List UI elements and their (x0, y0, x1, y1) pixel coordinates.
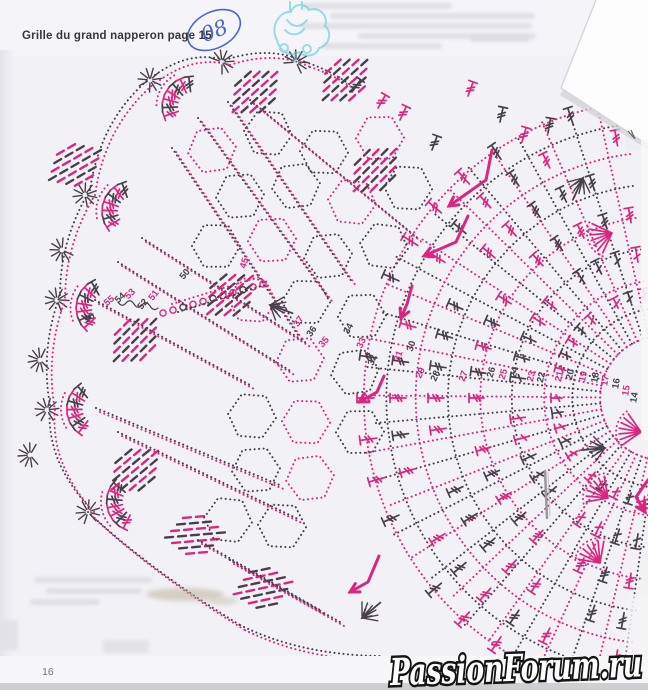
scanned-page: { "page": { "header": "Grille du grand n… (0, 0, 648, 690)
watermark-text: PassionForum.ru (389, 641, 643, 690)
watermark: PassionForum.ru (0, 0, 648, 690)
